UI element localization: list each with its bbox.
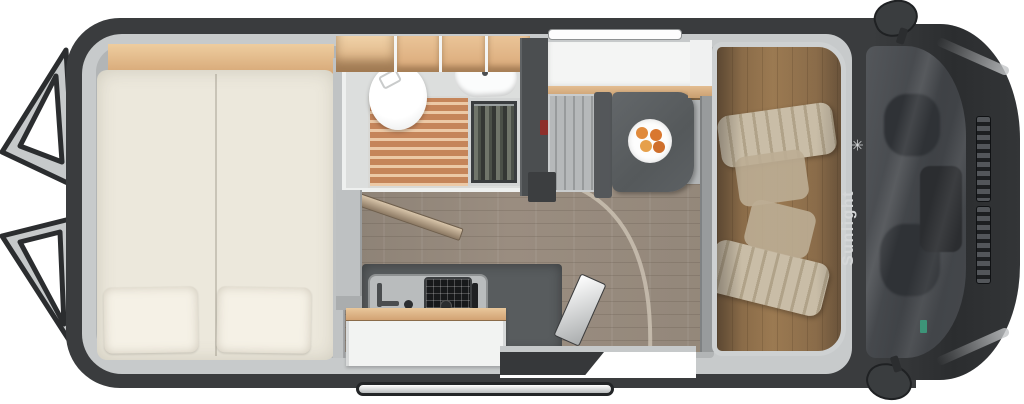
- cubby-shelf: [336, 36, 394, 72]
- hood-grille-vent: [976, 116, 991, 202]
- kitchen-cabinet-wood-top: [346, 308, 506, 321]
- roof-tint-overlay: [717, 47, 841, 351]
- brand-label: Sunlight: [840, 158, 868, 298]
- cubby-shelf: [442, 36, 484, 72]
- pillow-right: [216, 286, 311, 354]
- cab-roof-cutaway: [712, 42, 846, 356]
- corridor-cabinet: [336, 190, 362, 310]
- counter-handle: [472, 283, 478, 309]
- overhead-cubbies: [336, 36, 530, 72]
- fruit: [650, 129, 662, 141]
- cubby-shelf: [397, 36, 439, 72]
- dinette-overhead-locker: [548, 42, 706, 90]
- windshield: [866, 46, 966, 358]
- red-control-device: [540, 120, 548, 135]
- rear-door-left: [2, 50, 74, 186]
- fruit: [636, 127, 648, 139]
- hood-grille-vent: [976, 206, 991, 284]
- windshield-sticker: [920, 320, 927, 333]
- exterior-entry-step: [356, 382, 614, 396]
- bench-side-frame: [594, 92, 612, 198]
- pillow-left: [103, 286, 198, 354]
- camper-floorplan: ✳ Sunlight: [0, 0, 1024, 404]
- bench-corner-block: [528, 172, 556, 202]
- skylight-window-strip: [548, 29, 682, 40]
- furniture-end-panel: [690, 40, 712, 90]
- sunlight-logo-icon: ✳: [844, 133, 866, 157]
- hanging-clothes: [474, 104, 514, 180]
- fruit: [653, 141, 665, 153]
- glass-reflection: [866, 46, 966, 358]
- faucet-spout: [377, 301, 399, 306]
- fruit: [640, 140, 652, 152]
- fruit-plate-icon: [628, 119, 672, 163]
